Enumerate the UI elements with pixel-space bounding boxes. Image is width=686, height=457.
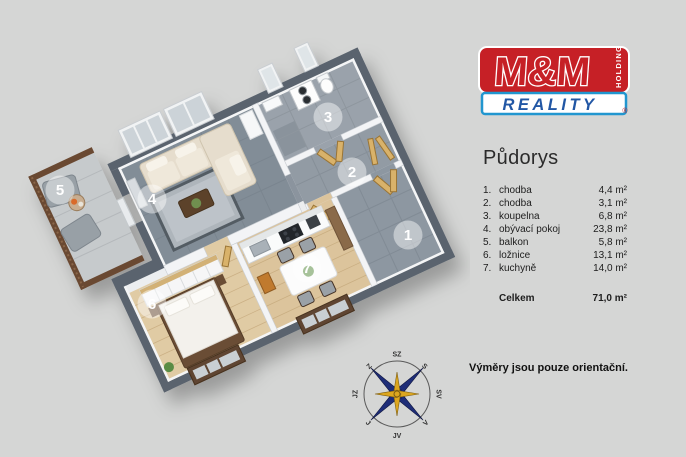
legend-panel: Půdorys 1. chodba 4,4 m² 2. chodba 3,1 m… <box>483 147 627 305</box>
row-num: 4. <box>483 223 499 236</box>
row-name: koupelna <box>499 210 599 223</box>
legend-row: 1. chodba 4,4 m² <box>483 184 627 197</box>
row-num-spacer <box>483 292 499 305</box>
compass-label-se: JV <box>393 433 402 440</box>
row-name: chodba <box>499 197 599 210</box>
row-num: 3. <box>483 210 499 223</box>
badge-6-number: 6 <box>148 296 156 313</box>
badge-5: 5 <box>46 176 75 205</box>
badge-3: 3 <box>314 103 343 132</box>
legend-row: 5. balkon 5,8 m² <box>483 236 627 249</box>
legend-row: 7. kuchyně 14,0 m² <box>483 262 627 275</box>
row-area: 23,8 m² <box>593 223 627 236</box>
legend-total-row: Celkem 71,0 m² <box>483 292 627 305</box>
total-area: 71,0 m² <box>593 292 627 305</box>
legend-title: Půdorys <box>483 147 627 170</box>
floorplan-flyer: { "colors": { "background": "#d5d6d5", "… <box>0 0 686 457</box>
badge-4-number: 4 <box>148 191 157 208</box>
row-area: 13,1 m² <box>593 249 627 262</box>
logo-holding-text: HOLDING <box>614 46 623 88</box>
row-name: chodba <box>499 184 599 197</box>
row-area: 6,8 m² <box>599 210 627 223</box>
badge-7-number: 7 <box>303 260 311 277</box>
row-area: 5,8 m² <box>599 236 627 249</box>
logo-registered-mark: ® <box>622 107 628 115</box>
row-area: 14,0 m² <box>593 262 627 275</box>
mm-reality-logo: M&M HOLDING REALITY ® <box>478 46 630 116</box>
badge-1-number: 1 <box>404 227 412 244</box>
bathroom-mirror-2 <box>294 42 319 72</box>
logo-reality-text: REALITY <box>502 96 597 114</box>
legend-row: 4. obývací pokoj 23,8 m² <box>483 223 627 236</box>
row-area: 4,4 m² <box>599 184 627 197</box>
badge-1: 1 <box>394 221 423 250</box>
badge-3-number: 3 <box>324 109 332 126</box>
row-name: obývací pokoj <box>499 223 593 236</box>
badge-4: 4 <box>138 185 167 214</box>
row-num: 2. <box>483 197 499 210</box>
hall1-door-leaf-2 <box>391 170 397 192</box>
compass-label-nw: SZ <box>393 352 403 359</box>
compass-label-south: J <box>364 420 372 428</box>
bathroom-mirror-1 <box>258 63 283 93</box>
row-name: balkon <box>499 236 599 249</box>
row-area: 3,1 m² <box>599 197 627 210</box>
badge-6: 6 <box>138 290 167 319</box>
compass-label-ne: SV <box>435 389 442 399</box>
compass-rose: S Z J V SZ SV JV JZ <box>350 346 444 442</box>
bath-door-leaf-2 <box>336 141 344 161</box>
badge-2: 2 <box>338 158 367 187</box>
compass-center <box>394 391 400 397</box>
total-label: Celkem <box>499 292 593 305</box>
row-num: 1. <box>483 184 499 197</box>
row-name: ložnice <box>499 249 593 262</box>
badge-5-number: 5 <box>56 182 64 199</box>
row-num: 7. <box>483 262 499 275</box>
row-name: kuchyně <box>499 262 593 275</box>
row-num: 6. <box>483 249 499 262</box>
legend-row: 3. koupelna 6,8 m² <box>483 210 627 223</box>
badge-2-number: 2 <box>348 164 356 181</box>
row-num: 5. <box>483 236 499 249</box>
logo-mm-text: M&M <box>493 50 592 94</box>
disclaimer-text: Výměry jsou pouze orientační. <box>469 362 628 374</box>
compass-label-east: V <box>422 419 430 427</box>
badge-7: 7 <box>293 254 322 283</box>
legend-row: 6. ložnice 13,1 m² <box>483 249 627 262</box>
compass-label-sw: JZ <box>353 389 360 398</box>
legend-row: 2. chodba 3,1 m² <box>483 197 627 210</box>
